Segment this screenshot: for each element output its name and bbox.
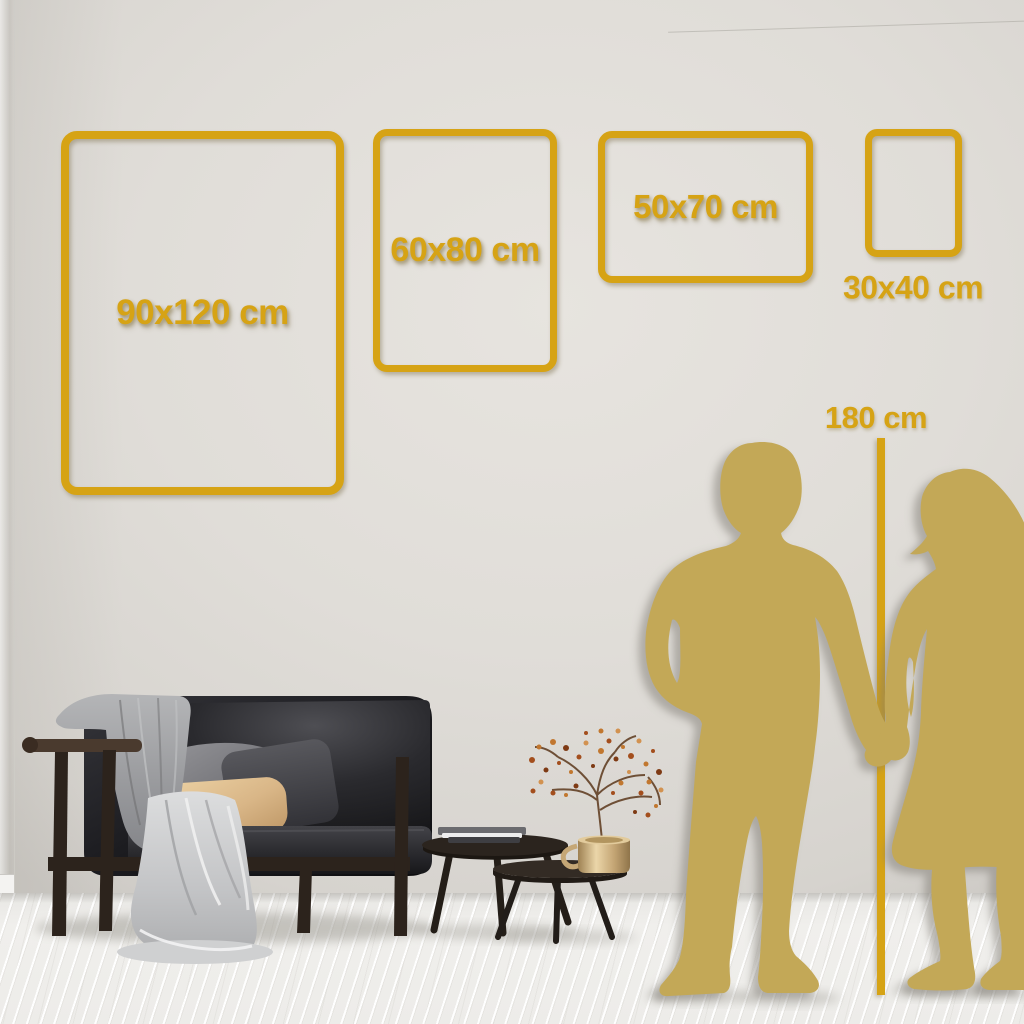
size-frame-50x70: 50x70 cm [598, 131, 813, 283]
poster-size-guide-scene: 90x120 cm 60x80 cm 50x70 cm 30x40 cm 180… [0, 0, 1024, 1024]
size-label-60x80: 60x80 cm [390, 231, 539, 270]
size-label-50x70: 50x70 cm [633, 188, 778, 226]
size-label-90x120: 90x120 cm [116, 293, 289, 333]
size-label-30x40: 30x40 cm [843, 270, 983, 307]
size-frame-60x80: 60x80 cm [373, 129, 557, 372]
height-ruler-line [877, 438, 885, 995]
size-frame-30x40 [865, 129, 962, 257]
wall-corner-left [0, 0, 15, 896]
size-frame-90x120: 90x120 cm [61, 131, 344, 495]
floor [0, 893, 1024, 1024]
wall-floor-edge [0, 893, 1024, 903]
height-label: 180 cm [825, 400, 927, 436]
